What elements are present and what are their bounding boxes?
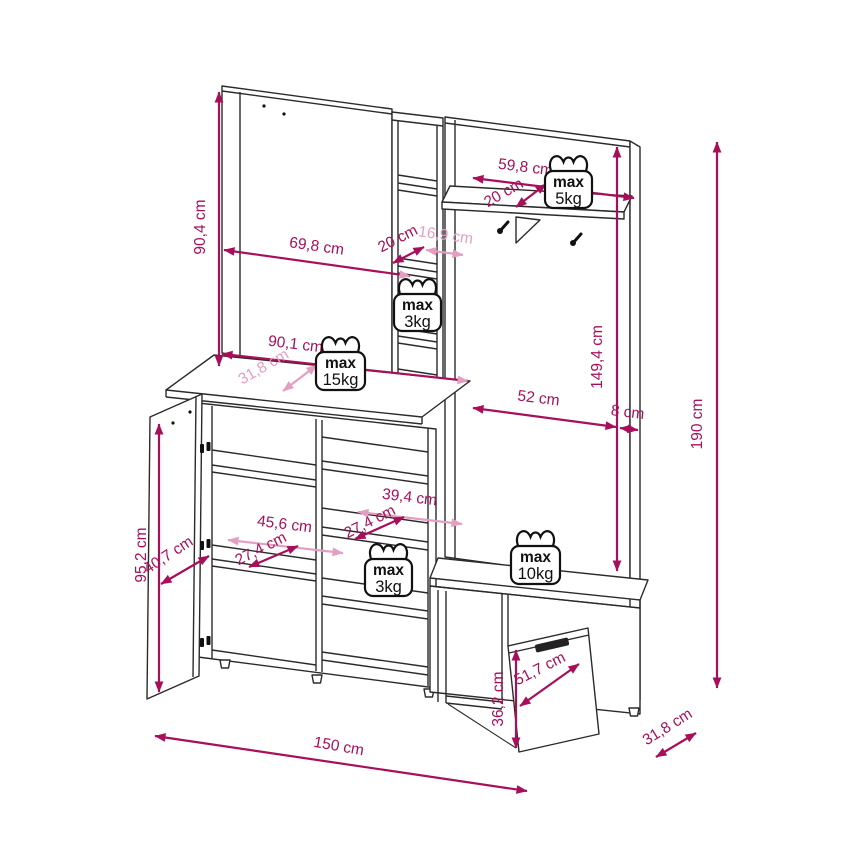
dim-label-total-depth: 31,8 cm <box>640 705 696 749</box>
weight-badge-coat-shelf: max 5kg <box>545 156 592 208</box>
bench-flap-open <box>508 628 599 752</box>
badge-max-label: max <box>553 174 584 191</box>
badge-kg-value: 10kg <box>518 565 554 583</box>
foot <box>220 660 230 668</box>
foot <box>312 675 322 683</box>
diagram-canvas: 90,4 cm 69,8 cm 20 cm 16,9 cm 59,8 cm 20… <box>0 0 868 868</box>
badge-kg-value: 3kg <box>404 313 431 331</box>
badge-kg-value: 3kg <box>375 578 402 596</box>
badge-max-label: max <box>402 297 433 314</box>
kettlebell-icon <box>550 156 587 172</box>
weight-badge-column: max 3kg <box>394 279 441 331</box>
kettlebell-icon <box>399 279 436 295</box>
weight-badge-mid-shelf: max 3kg <box>365 544 412 596</box>
badge-kg-value: 5kg <box>555 190 582 208</box>
dim-label-total-width: 150 cm <box>312 734 365 760</box>
dim-label-total-height: 190 cm <box>689 399 706 450</box>
dim-label-right-panel-height: 149,4 cm <box>589 325 606 389</box>
badge-max-label: max <box>325 355 356 372</box>
dim-label-cabinet-height: 95,2 cm <box>133 527 150 582</box>
badge-kg-value: 15kg <box>323 371 359 389</box>
dim-label-flap-height: 36,2 cm <box>490 671 507 726</box>
kettlebell-icon <box>517 531 554 547</box>
weight-badge-cabinet-top: max 15kg <box>316 337 365 390</box>
foot <box>629 708 639 716</box>
weight-badge-bench: max 10kg <box>511 531 560 584</box>
furniture-dimension-diagram: 90,4 cm 69,8 cm 20 cm 16,9 cm 59,8 cm 20… <box>0 0 868 868</box>
kettlebell-icon <box>322 337 359 353</box>
hinge-icon <box>200 541 204 550</box>
badge-max-label: max <box>373 562 404 579</box>
hinge-icon <box>200 638 204 647</box>
badge-max-label: max <box>520 549 551 566</box>
hinge-icon <box>200 444 204 453</box>
kettlebell-icon <box>370 544 407 560</box>
dim-label-back-height: 90,4 cm <box>192 199 209 254</box>
